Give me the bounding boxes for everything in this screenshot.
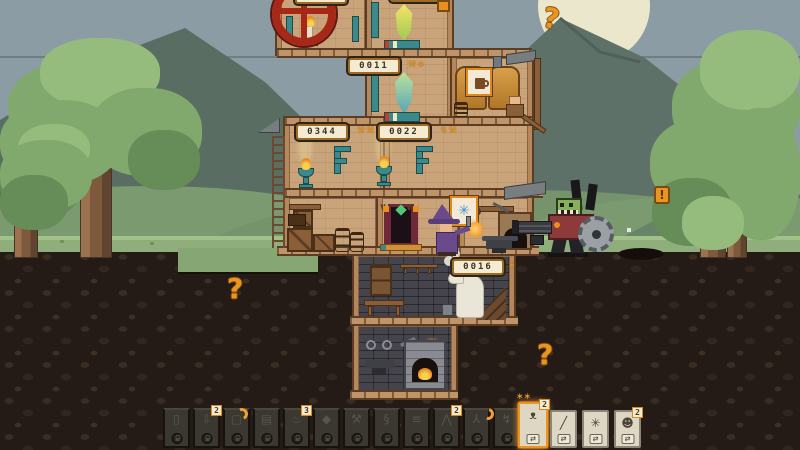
saw-hub bbox=[592, 230, 601, 239]
lock-icon bbox=[231, 433, 242, 444]
altar-flame bbox=[379, 156, 389, 168]
tree-canopy bbox=[700, 30, 800, 110]
lock-icon bbox=[501, 433, 512, 444]
bench-leg bbox=[368, 306, 372, 316]
altar-stem bbox=[303, 177, 309, 184]
count-badge: 2 bbox=[451, 405, 462, 416]
f-pipe-arm bbox=[416, 146, 433, 152]
wall-cabinet[interactable] bbox=[370, 264, 392, 296]
ring-tool bbox=[366, 340, 376, 350]
card-action-icon: ⇄ bbox=[527, 434, 540, 444]
altar-flame bbox=[301, 158, 311, 170]
question-mark-underground-left[interactable]: ? bbox=[227, 272, 243, 305]
white-speck bbox=[627, 228, 631, 232]
planks-slot-icon: ≡ bbox=[405, 412, 428, 426]
bench-leg bbox=[396, 306, 400, 316]
lock-icon bbox=[291, 433, 302, 444]
slash-spark-card[interactable]: ╱⇄ bbox=[550, 410, 577, 448]
crate bbox=[313, 234, 335, 252]
wall-mark: ∨ bbox=[405, 202, 413, 213]
f-pipe-arm bbox=[334, 146, 351, 152]
mug-handle bbox=[484, 80, 489, 87]
counter-workshop-left: 0344 bbox=[296, 124, 348, 140]
barrel bbox=[335, 228, 350, 252]
ladder[interactable] bbox=[272, 136, 285, 248]
f-pipe-arm bbox=[334, 158, 347, 164]
bolt-slot[interactable]: ↯ bbox=[493, 408, 520, 448]
counter-top-right-partial bbox=[390, 0, 442, 2]
tree-canopy bbox=[682, 196, 744, 250]
pipe bbox=[352, 16, 359, 42]
planter-crate-slot[interactable]: ▤ bbox=[253, 408, 280, 448]
hook-slot[interactable]: § bbox=[373, 408, 400, 448]
count-badge: 2 bbox=[539, 399, 550, 410]
pickaxe-slot[interactable]: ⋀2 bbox=[433, 408, 460, 448]
zombie-eye bbox=[569, 203, 573, 207]
crate bbox=[287, 228, 313, 252]
counter-workshop-left-icons: ⚒⚒ bbox=[357, 126, 375, 136]
lock-icon bbox=[411, 433, 422, 444]
counter-basement: 0016 bbox=[452, 259, 504, 275]
planks-slot[interactable]: ≡ bbox=[403, 408, 430, 448]
counter-basement-icons: ∗ bbox=[508, 261, 517, 271]
counter-top-left-partial bbox=[295, 0, 347, 4]
crystal-pedestal bbox=[384, 40, 420, 49]
throne-steps bbox=[380, 244, 422, 251]
cellar-anvil-base bbox=[372, 368, 386, 374]
furnace-fire bbox=[418, 368, 432, 380]
cellar-anvil[interactable] bbox=[366, 360, 394, 368]
hook-slot-icon: § bbox=[375, 412, 398, 426]
hammer-slot[interactable]: ⚒ bbox=[343, 408, 370, 448]
card-action-icon: ⇄ bbox=[621, 434, 634, 444]
zombie-eye bbox=[560, 203, 564, 207]
hook bbox=[404, 268, 407, 274]
dark-chest bbox=[288, 214, 306, 226]
tree-canopy bbox=[128, 130, 200, 190]
gun-magazine bbox=[530, 235, 544, 245]
gem-slot-icon: ◆ bbox=[315, 412, 338, 426]
throne-finial bbox=[383, 206, 389, 212]
brick-band bbox=[350, 390, 458, 400]
gem-slot[interactable]: ◆ bbox=[313, 408, 340, 448]
counter-workshop-right-icons: ↯⚒ bbox=[440, 126, 458, 136]
slash-spark-card-icon: ╱ bbox=[552, 416, 575, 430]
dwarf-body[interactable] bbox=[506, 104, 524, 117]
grass-tuft bbox=[60, 240, 64, 243]
bolt-slot-icon: ↯ bbox=[495, 412, 518, 426]
wizard-boots bbox=[438, 252, 456, 256]
jar-slot[interactable]: ▯ bbox=[163, 408, 190, 448]
f-pipe-arm bbox=[416, 158, 429, 164]
jar-slot-icon: ▯ bbox=[165, 412, 188, 426]
red-wheel-bar bbox=[301, 0, 307, 40]
robot-emblem bbox=[554, 222, 560, 228]
dirt-puddle bbox=[618, 248, 664, 260]
barrel bbox=[350, 232, 364, 252]
count-badge: 2 bbox=[632, 407, 643, 418]
crystal-pedestal bbox=[384, 112, 420, 122]
lock-icon bbox=[321, 433, 332, 444]
lantern bbox=[493, 56, 502, 68]
lock-icon bbox=[351, 433, 362, 444]
altar-base bbox=[377, 182, 391, 186]
beast-card-icon: ᴥ bbox=[520, 408, 546, 422]
exclamation-badge[interactable]: ! bbox=[654, 186, 670, 204]
robot-foot bbox=[568, 253, 588, 257]
hammer-slot-icon: ⚒ bbox=[345, 412, 368, 426]
pipe bbox=[371, 2, 379, 38]
tankard-slot[interactable]: ♨3 bbox=[283, 408, 310, 448]
zombie-teeth bbox=[558, 210, 578, 214]
pipe bbox=[371, 70, 379, 112]
altar-stem bbox=[381, 175, 387, 182]
count-badge: 3 bbox=[301, 405, 312, 416]
anvil-base bbox=[492, 248, 506, 253]
deposit-slot[interactable]: ⇩2 bbox=[193, 408, 220, 448]
count-badge: 2 bbox=[211, 405, 222, 416]
counter-workshop-right: 0022 bbox=[378, 124, 430, 140]
burst-spark-card[interactable]: ✳⇄ bbox=[582, 410, 609, 448]
minigun-barrels bbox=[518, 221, 552, 234]
throne-post bbox=[384, 210, 388, 244]
lock-icon bbox=[471, 433, 482, 444]
orange-chest-pickup[interactable] bbox=[437, 0, 450, 12]
wizard-hat bbox=[432, 204, 454, 220]
brew-order-card[interactable] bbox=[466, 68, 492, 96]
monkey-card[interactable]: ☻⇄2 bbox=[614, 410, 641, 448]
ring-tool bbox=[382, 340, 392, 350]
tree-canopy bbox=[0, 175, 68, 230]
card-action-icon: ⇄ bbox=[589, 434, 602, 444]
hook bbox=[428, 268, 431, 274]
game-scene: ∨ ∨ ✳ bbox=[0, 0, 800, 450]
burst-spark-card-icon: ✳ bbox=[584, 416, 607, 430]
robot-foot bbox=[548, 253, 568, 257]
hook bbox=[416, 268, 419, 274]
lock-icon bbox=[171, 433, 182, 444]
question-mark-underground-right[interactable]: ? bbox=[537, 338, 553, 371]
beast-card[interactable]: ᴥ⇄2 bbox=[518, 402, 548, 448]
wizard-hammer bbox=[466, 216, 471, 227]
small-barrel bbox=[454, 102, 468, 117]
card-action-icon: ⇄ bbox=[557, 434, 570, 444]
planter-crate-slot-icon: ▤ bbox=[255, 412, 278, 426]
counter-crystal-icons: ⚒∗ bbox=[408, 60, 426, 70]
counter-crystal: 0011 bbox=[348, 58, 400, 74]
grass-tuft bbox=[150, 242, 154, 245]
wizard-robe[interactable] bbox=[436, 232, 458, 254]
support-beam bbox=[534, 58, 541, 130]
monkey-card-icon: ☻ bbox=[616, 416, 639, 430]
lock-icon bbox=[381, 433, 392, 444]
throne-post bbox=[414, 210, 418, 244]
selected-card-sparkles: ∗∗ bbox=[516, 392, 531, 402]
lock-icon bbox=[261, 433, 272, 444]
throne-finial bbox=[413, 206, 419, 212]
lock-icon bbox=[441, 433, 452, 444]
bucket bbox=[442, 304, 453, 316]
lock-icon bbox=[201, 433, 212, 444]
altar-base bbox=[299, 184, 313, 188]
